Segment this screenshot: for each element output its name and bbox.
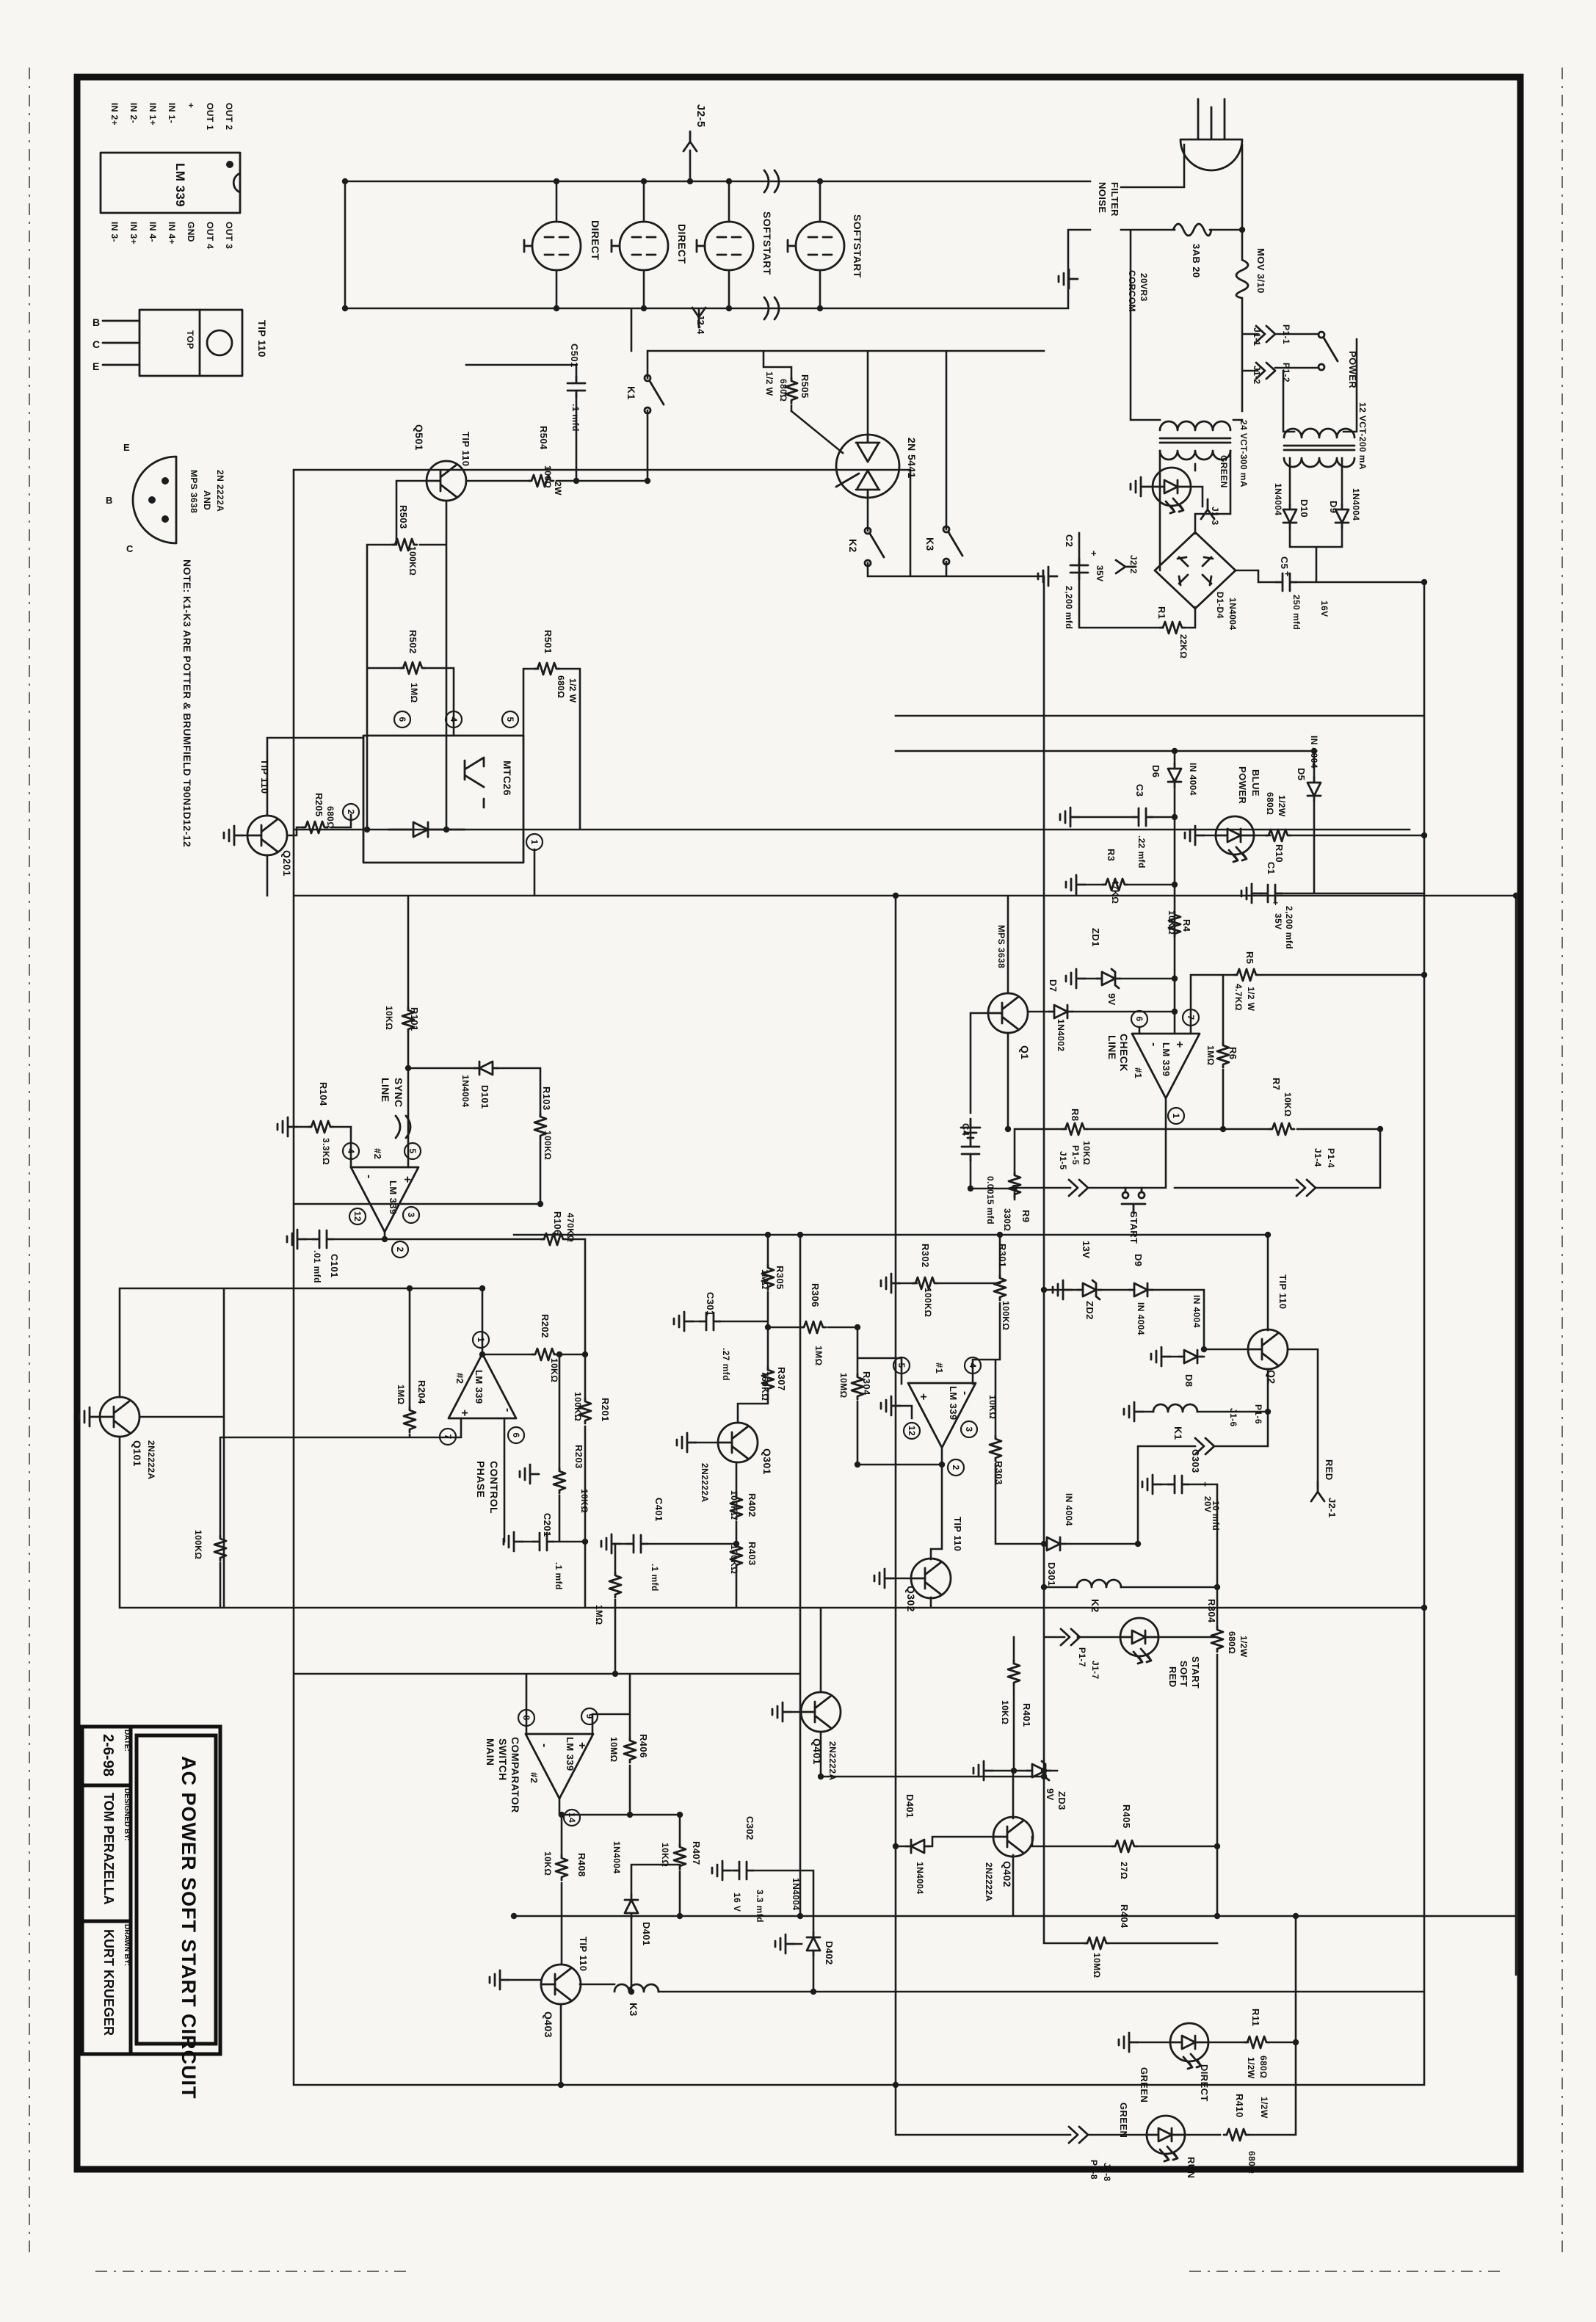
label-r106: R106 — [552, 1211, 563, 1236]
pb-symbol — [1122, 1188, 1145, 1213]
junction-dot — [1011, 1768, 1017, 1774]
label-r4: R4 — [1181, 919, 1192, 932]
gnd-symbol — [1066, 969, 1085, 988]
label-r505: R505 — [799, 374, 810, 399]
label-20vr3: 20VR3 — [1139, 273, 1149, 302]
label-3-3k-: 3.3KΩ — [321, 1138, 331, 1165]
label-in-1-: IN 1- — [167, 103, 177, 123]
rh-symbol — [1224, 2129, 1249, 2141]
fuse-symbol — [1173, 224, 1211, 236]
cap-symbol — [313, 1230, 333, 1248]
gnd-symbol — [772, 1702, 791, 1721]
label-c501: C501 — [569, 344, 580, 368]
label-r407: R407 — [691, 1841, 702, 1865]
junction-dot — [407, 1285, 413, 1291]
label-r104: R104 — [318, 1082, 329, 1106]
label-d402: D402 — [824, 1941, 835, 1965]
junction-dot — [573, 478, 579, 484]
label-r7: R7 — [1271, 1078, 1282, 1090]
rh-symbol — [541, 1233, 566, 1245]
label-1n4004: 1N4004 — [915, 1862, 925, 1894]
label-2: 2 — [951, 1465, 961, 1470]
label-r205: R205 — [313, 793, 324, 817]
junction-dot — [817, 178, 823, 184]
label-line: LINE — [1106, 1035, 1118, 1060]
label-p1-6: P1-6 — [1253, 1404, 1263, 1424]
label-in-3+: IN 3+ — [128, 222, 139, 244]
label-10k-: 10KΩ — [987, 1395, 998, 1419]
swv-symbol — [1318, 332, 1338, 370]
label-in-4004: IN 4004 — [1188, 763, 1198, 796]
label-r304: R304 — [861, 1371, 872, 1396]
junction-dot — [342, 305, 348, 311]
title: AC POWER SOFT START CIRCUIT — [177, 1756, 200, 2099]
label-softstart: SOFTSTART — [852, 214, 863, 278]
label-r5: R5 — [1244, 951, 1255, 964]
label-in-4004: IN 4004 — [1136, 1302, 1146, 1335]
junction-dot — [726, 178, 732, 184]
label-r305: R305 — [775, 1266, 786, 1290]
junction-dot — [582, 1352, 588, 1357]
label-mov-3-10: MOV 3/10 — [1255, 248, 1266, 294]
gnd-symbol — [874, 1569, 893, 1588]
label-r9: R9 — [1020, 1210, 1031, 1222]
rv-symbol — [1217, 1042, 1229, 1067]
led-symbol — [1216, 816, 1254, 862]
gnd-symbol — [881, 1396, 900, 1415]
label-1m-: 1MΩ — [1205, 1045, 1216, 1066]
label-red: RED — [1167, 1666, 1178, 1688]
label-47k-: 47KΩ — [1110, 879, 1120, 904]
label-680-: 680Ω — [556, 675, 566, 698]
rh-symbol — [308, 1121, 333, 1133]
junction-dot — [1421, 1605, 1427, 1611]
gnd-symbol — [79, 1407, 98, 1426]
label-3ab-20: 3AB 20 — [1191, 244, 1202, 277]
schematic-canvas: J2-5DIRECTDIRECTSOFTSTARTSOFTSTARTJ2-4NO… — [0, 0, 1596, 2322]
label-r504: R504 — [538, 426, 549, 450]
label-r410: R410 — [1234, 2094, 1245, 2118]
junction-dot — [1377, 1126, 1383, 1132]
label-2n-5441: 2N 5441 — [906, 438, 918, 479]
label-2w: 2W — [553, 482, 563, 496]
label-r404: R404 — [1119, 1904, 1130, 1929]
junction-dot — [556, 1352, 562, 1357]
label-1-2w: 1/2W — [1277, 795, 1287, 817]
lm339-pinout-diagram — [101, 153, 240, 213]
xfmr-symbol — [1160, 421, 1230, 460]
label--1-mfd: .1 mfd — [554, 1562, 564, 1590]
rh-symbol — [801, 1321, 826, 1333]
junction-dot — [818, 1774, 824, 1779]
junction-dot — [1421, 972, 1427, 978]
junction-dot — [554, 178, 559, 184]
junction-dot — [479, 1285, 485, 1291]
junction-dot — [1135, 1541, 1141, 1547]
label-r304: R304 — [1206, 1599, 1217, 1623]
rv-symbol — [214, 1536, 226, 1561]
label-green: GREEN — [1118, 2103, 1129, 2138]
label-q401: Q401 — [811, 1738, 823, 1765]
label-1n4004: 1N4004 — [460, 1075, 471, 1107]
junction-dot — [1513, 893, 1519, 899]
label-r406: R406 — [638, 1734, 649, 1758]
label-c: C — [126, 543, 134, 554]
junction-dot — [627, 1812, 633, 1818]
label-r6: R6 — [1227, 1047, 1238, 1059]
label-1-2-w: 1/2 W — [764, 371, 775, 396]
zr-symbol — [1078, 1280, 1101, 1299]
coil-symbol — [614, 1984, 659, 1992]
label-10k-: 10KΩ — [579, 1489, 590, 1513]
designed-by-label: DESIGNED BY: — [123, 1788, 131, 1841]
junction-dot — [1214, 1843, 1220, 1849]
junction-dot — [1214, 1584, 1220, 1590]
label-100k-: 100KΩ — [193, 1530, 203, 1559]
label-top: TOP — [185, 330, 195, 349]
label-p1-8: P1-8 — [1089, 2160, 1099, 2180]
junction-dot — [1172, 976, 1178, 982]
label-in-4004: IN 4004 — [1064, 1493, 1074, 1526]
label-j2-1: J2-1 — [1327, 1498, 1338, 1518]
obox-symbol — [363, 736, 523, 863]
label-run: RUN — [1186, 2157, 1197, 2178]
label-d9: D9 — [1133, 1254, 1144, 1266]
junction-dot — [537, 1201, 543, 1207]
junction-dot — [1172, 748, 1178, 754]
label-6: 6 — [1134, 1016, 1145, 1021]
label-r8: R8 — [1070, 1109, 1081, 1121]
schematic-sheet: J2-5DIRECTDIRECTSOFTSTARTSOFTSTARTJ2-4NO… — [0, 0, 1596, 2322]
outlet-symbol — [524, 222, 581, 270]
xfmr-symbol — [1284, 429, 1354, 467]
label-d8: D8 — [1183, 1374, 1194, 1387]
chev2-symbol — [1296, 1180, 1316, 1196]
label-out-4: OUT 4 — [205, 222, 215, 249]
label-10m-: 10MΩ — [1092, 1953, 1102, 1978]
outlet-symbol — [788, 222, 844, 270]
label-r10: R10 — [1274, 844, 1285, 863]
date-value: 2-6-98 — [99, 1734, 116, 1777]
dr-symbol — [1129, 1283, 1153, 1296]
led-symbol — [1170, 2023, 1208, 2069]
label-0-0015-mfd: 0.0015 mfd — [985, 1176, 995, 1225]
label-c5: C5 — [1279, 556, 1290, 569]
junction-dot — [628, 1989, 634, 1995]
swv-symbol — [645, 375, 664, 413]
dr-symbol — [1307, 777, 1321, 801]
label-r502: R502 — [407, 630, 418, 654]
rh-symbol — [1160, 622, 1185, 634]
label-sync: SYNC — [393, 1078, 405, 1108]
rv-symbol — [402, 1007, 414, 1032]
label-#2: #2 — [529, 1772, 540, 1783]
rv-symbol — [534, 1114, 546, 1139]
junction-dot — [382, 1236, 388, 1242]
npn-symbol — [988, 993, 1028, 1033]
label-3: 3 — [406, 1212, 416, 1217]
cap-symbol — [1168, 1476, 1189, 1493]
junction-dot — [1201, 1346, 1207, 1352]
rv-symbol — [556, 1855, 567, 1880]
label-e: E — [123, 442, 130, 453]
label-b: B — [93, 316, 101, 328]
label-4: 4 — [968, 1363, 978, 1368]
gnd-symbol — [674, 1312, 693, 1331]
chev2-symbol — [1195, 1438, 1214, 1454]
label-r503: R503 — [398, 505, 409, 529]
label-1: 1 — [476, 1337, 486, 1342]
label-6: 6 — [511, 1432, 521, 1437]
label-9: 9 — [584, 1713, 595, 1719]
label-5: 5 — [505, 716, 515, 722]
label-#1: #1 — [934, 1363, 945, 1374]
dr-symbol — [1179, 1350, 1203, 1363]
label-10k-: 10KΩ — [1081, 1141, 1092, 1165]
junction-dot — [1220, 1126, 1226, 1132]
label-27-: 27Ω — [1119, 1862, 1129, 1879]
junction-dot — [342, 178, 348, 184]
label-direct: DIRECT — [676, 224, 688, 264]
label-1-2-w: 1/2 W — [1246, 987, 1256, 1012]
label-note-k1-k3-are-potter-brumfield-t90n1d12-12: NOTE: K1-K3 ARE POTTER & BRUMFIELD T90N1… — [181, 559, 193, 847]
label-r401: R401 — [1021, 1703, 1032, 1727]
label-power: POWER — [1347, 351, 1358, 388]
label-k1: K1 — [625, 386, 637, 400]
junction-dot — [1012, 1185, 1018, 1191]
label-zd1: ZD1 — [1090, 928, 1101, 947]
label--27-mfd: .27 mfd — [721, 1348, 731, 1381]
label-zd3: ZD3 — [1056, 1791, 1067, 1810]
junction-dot — [810, 1989, 816, 1995]
outlet-symbol — [697, 222, 753, 270]
label-lm-339: LM 339 — [565, 1737, 576, 1771]
junction-dot — [797, 1232, 803, 1238]
label-d5: D5 — [1296, 768, 1307, 780]
label-680-: 680Ω — [1265, 792, 1275, 815]
junction-dot — [1265, 1232, 1271, 1238]
gnd-symbol — [881, 1274, 900, 1293]
npn-symbol — [541, 1964, 581, 2004]
label-e: E — [93, 360, 100, 372]
zr-symbol — [1097, 969, 1120, 988]
rh-symbol — [1062, 1123, 1087, 1135]
label-out-2: OUT 2 — [224, 103, 234, 130]
cap-symbol — [1261, 885, 1282, 902]
label-r1: R1 — [1156, 606, 1167, 619]
label-d1-d4: D1-D4 — [1215, 592, 1225, 619]
npn-symbol — [100, 1397, 139, 1437]
label-b: B — [106, 495, 113, 506]
gnd-symbol — [1241, 884, 1261, 903]
drawn-by-value: KURT KRUEGER — [101, 1929, 116, 2036]
label-in-1+: IN 1+ — [148, 103, 158, 126]
npn-symbol — [718, 1423, 758, 1462]
label-q501: Q501 — [413, 424, 425, 451]
npn-symbol — [247, 816, 287, 855]
cap-symbol — [627, 1535, 648, 1553]
label-1m-: 1MΩ — [813, 1346, 824, 1366]
label-gnd: GND — [186, 222, 196, 242]
led-symbol — [1120, 1618, 1158, 1664]
rh-symbol — [1084, 1937, 1109, 1949]
label-2n2222a: 2N2222A — [700, 1463, 710, 1503]
rh-symbol — [534, 663, 559, 675]
label-mps-3638: MPS 3638 — [996, 925, 1006, 968]
label-100k-: 100KΩ — [923, 1288, 933, 1317]
rh-symbol — [1234, 969, 1259, 981]
gnd-symbol — [1060, 808, 1079, 827]
junction-dot — [797, 1913, 803, 1919]
label-green: GREEN — [1139, 2067, 1150, 2103]
cap-symbol — [1132, 808, 1153, 826]
label-r307: R307 — [776, 1367, 787, 1391]
label-mtc26: MTC26 — [501, 761, 513, 796]
junction-dot — [677, 1913, 683, 1919]
label-4: 4 — [449, 716, 459, 722]
label-r203: R203 — [573, 1445, 584, 1469]
conn-symbol — [1311, 1481, 1324, 1501]
label-680-: 680Ω — [1247, 2151, 1257, 2174]
label-j2-5: J2-5 — [694, 104, 707, 128]
label-r202: R202 — [540, 1314, 551, 1338]
label-r306: R306 — [810, 1283, 821, 1307]
junction-dot — [726, 305, 732, 311]
junction-dot — [558, 2082, 564, 2088]
junction-dot — [554, 305, 559, 311]
label-switch: SWITCH — [497, 1738, 509, 1781]
designed-by-value: TOM PERAZELLA — [101, 1793, 116, 1905]
gnd-symbol — [490, 1970, 509, 1989]
cap-symbol — [567, 377, 585, 397]
dr-symbol — [1283, 504, 1296, 528]
label-35v: 35V — [1095, 565, 1105, 582]
label-q1: Q1 — [1019, 1045, 1031, 1059]
label-5: 5 — [896, 1363, 907, 1368]
chev2-symbol — [1069, 1180, 1088, 1196]
junction-dot — [939, 1462, 945, 1467]
label-c: C — [93, 338, 101, 350]
label-p1-7: P1-7 — [1077, 1647, 1087, 1667]
label-100k-: 100KΩ — [1001, 1301, 1011, 1330]
junction-dot — [968, 1186, 973, 1191]
label-q2: Q2 — [1266, 1370, 1277, 1384]
label-softstart: SOFTSTART — [761, 211, 773, 275]
rv-symbol — [990, 1436, 1001, 1461]
label-13v: 13V — [1081, 1241, 1092, 1258]
junction-dot — [855, 1462, 860, 1467]
label-lm-339: LM 339 — [474, 1370, 485, 1404]
label-5: 5 — [407, 1148, 418, 1153]
label-8: 8 — [521, 1715, 532, 1720]
label-tip-110: TIP 110 — [256, 320, 268, 358]
label-check: CHECK — [1118, 1034, 1130, 1072]
label-+: + — [1203, 1479, 1208, 1490]
junction-dot — [733, 1541, 739, 1547]
label--1-mfd: .1 mfd — [650, 1564, 660, 1592]
gnd-symbol — [1124, 1402, 1143, 1421]
label-q301: Q301 — [761, 1448, 773, 1475]
label-k2: K2 — [1089, 1599, 1101, 1613]
label-+: + — [1091, 548, 1097, 559]
label-j1-5: J1-5 — [1058, 1151, 1068, 1170]
label-r408: R408 — [576, 1853, 587, 1877]
label-tip-110: TIP 110 — [952, 1517, 963, 1551]
junction-dot — [443, 827, 449, 832]
label-out-3: OUT 3 — [224, 222, 234, 249]
label-c302: C302 — [744, 1816, 755, 1840]
label-line: LINE — [380, 1078, 391, 1103]
label-soft: SOFT — [1178, 1661, 1189, 1687]
label-in-3-: IN 3- — [109, 222, 120, 242]
junction-dot — [1041, 1287, 1047, 1293]
gnd-symbol — [1059, 269, 1078, 289]
drawn-by-label: DRAWN BY: — [123, 1924, 131, 1966]
label-j1-4: J1-4 — [1313, 1148, 1323, 1167]
label-direct: DIRECT — [1199, 2064, 1210, 2102]
label-phase: PHASE — [475, 1461, 487, 1498]
rv-symbol — [1008, 1661, 1020, 1686]
label-zd2: ZD2 — [1084, 1301, 1095, 1320]
npn-symbol — [427, 461, 466, 501]
label-250-mfd: 250 mfd — [1291, 595, 1302, 630]
label-1n4004: 1N4004 — [791, 1878, 801, 1910]
label-#2: #2 — [372, 1148, 383, 1159]
gnd-symbol — [1151, 1347, 1170, 1366]
label-q201: Q201 — [281, 850, 293, 877]
label-12: 12 — [352, 1211, 363, 1222]
label-p1-2: P1-2 — [1281, 363, 1291, 382]
led-symbol — [1153, 468, 1191, 513]
label-1m-: 1MΩ — [396, 1385, 406, 1405]
label-q403: Q403 — [543, 2011, 554, 2038]
label-1: 1 — [1171, 1113, 1181, 1118]
label-7: 7 — [1186, 1015, 1196, 1020]
junction-dot — [1041, 1774, 1047, 1779]
label-lm-339: LM 339 — [948, 1386, 959, 1420]
label-r11: R11 — [1250, 2009, 1261, 2026]
junction-dot — [405, 1065, 411, 1071]
rh-symbol — [302, 821, 327, 833]
rv-symbol — [609, 1572, 621, 1597]
label-9v: 9V — [1106, 993, 1117, 1006]
label-p1-5: P1-5 — [1070, 1145, 1081, 1165]
label-c401: C401 — [653, 1498, 664, 1522]
label-10-mfd: 10 mfd — [1211, 1501, 1221, 1531]
label--01-mfd: .01 mfd — [312, 1250, 322, 1283]
label-k2: K2 — [847, 539, 859, 553]
coil-symbol — [1077, 1580, 1121, 1587]
label-r303: R303 — [993, 1461, 1004, 1485]
cap-symbol — [962, 1140, 979, 1161]
label-r3: R3 — [1106, 849, 1117, 861]
junction-dot — [1041, 1541, 1047, 1547]
date-label: DATE: — [123, 1730, 131, 1752]
junction-dot — [641, 178, 647, 184]
label-filter: FILTER — [1109, 182, 1120, 217]
dr-symbol — [625, 1895, 638, 1918]
gnd-symbol — [224, 826, 243, 845]
label-4: 4 — [346, 1148, 356, 1153]
label-c2: C2 — [1064, 534, 1075, 547]
label-+: + — [458, 1409, 471, 1417]
label-in-2-: IN 2- — [128, 103, 139, 123]
label-2-200-mfd: 2,200 mfd — [1064, 586, 1074, 629]
label-680-: 680Ω — [325, 806, 335, 829]
label-10k-: 10KΩ — [1283, 1092, 1293, 1117]
junction-dot — [1421, 579, 1427, 585]
label-1-2w: 1/2W — [1238, 1636, 1249, 1658]
